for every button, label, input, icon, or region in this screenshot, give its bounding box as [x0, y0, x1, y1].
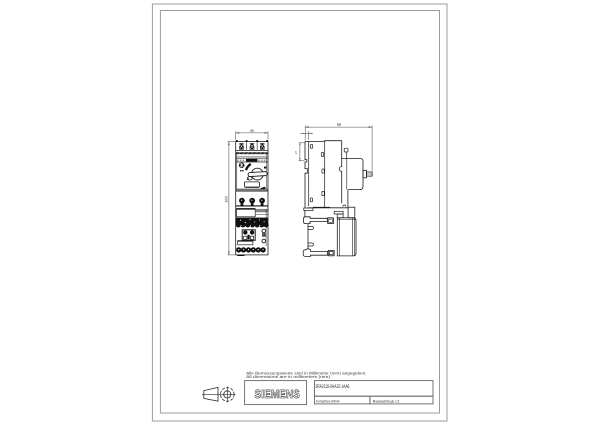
- svg-text:SIEMENS: SIEMENS: [255, 387, 301, 401]
- svg-text:Massstab/Scale 1:2: Massstab/Scale 1:2: [373, 399, 400, 403]
- svg-text:160: 160: [224, 195, 229, 202]
- svg-text:45: 45: [250, 128, 254, 133]
- svg-text:96: 96: [337, 122, 341, 127]
- svg-text:All dimensions are in millimet: All dimensions are in millimeters (mm): [246, 374, 331, 379]
- svg-text:Format/Size DIN A4: Format/Size DIN A4: [316, 399, 340, 403]
- svg-text:3RA2110-0AA15-1AA6: 3RA2110-0AA15-1AA6: [315, 384, 349, 390]
- svg-text:27: 27: [294, 151, 298, 155]
